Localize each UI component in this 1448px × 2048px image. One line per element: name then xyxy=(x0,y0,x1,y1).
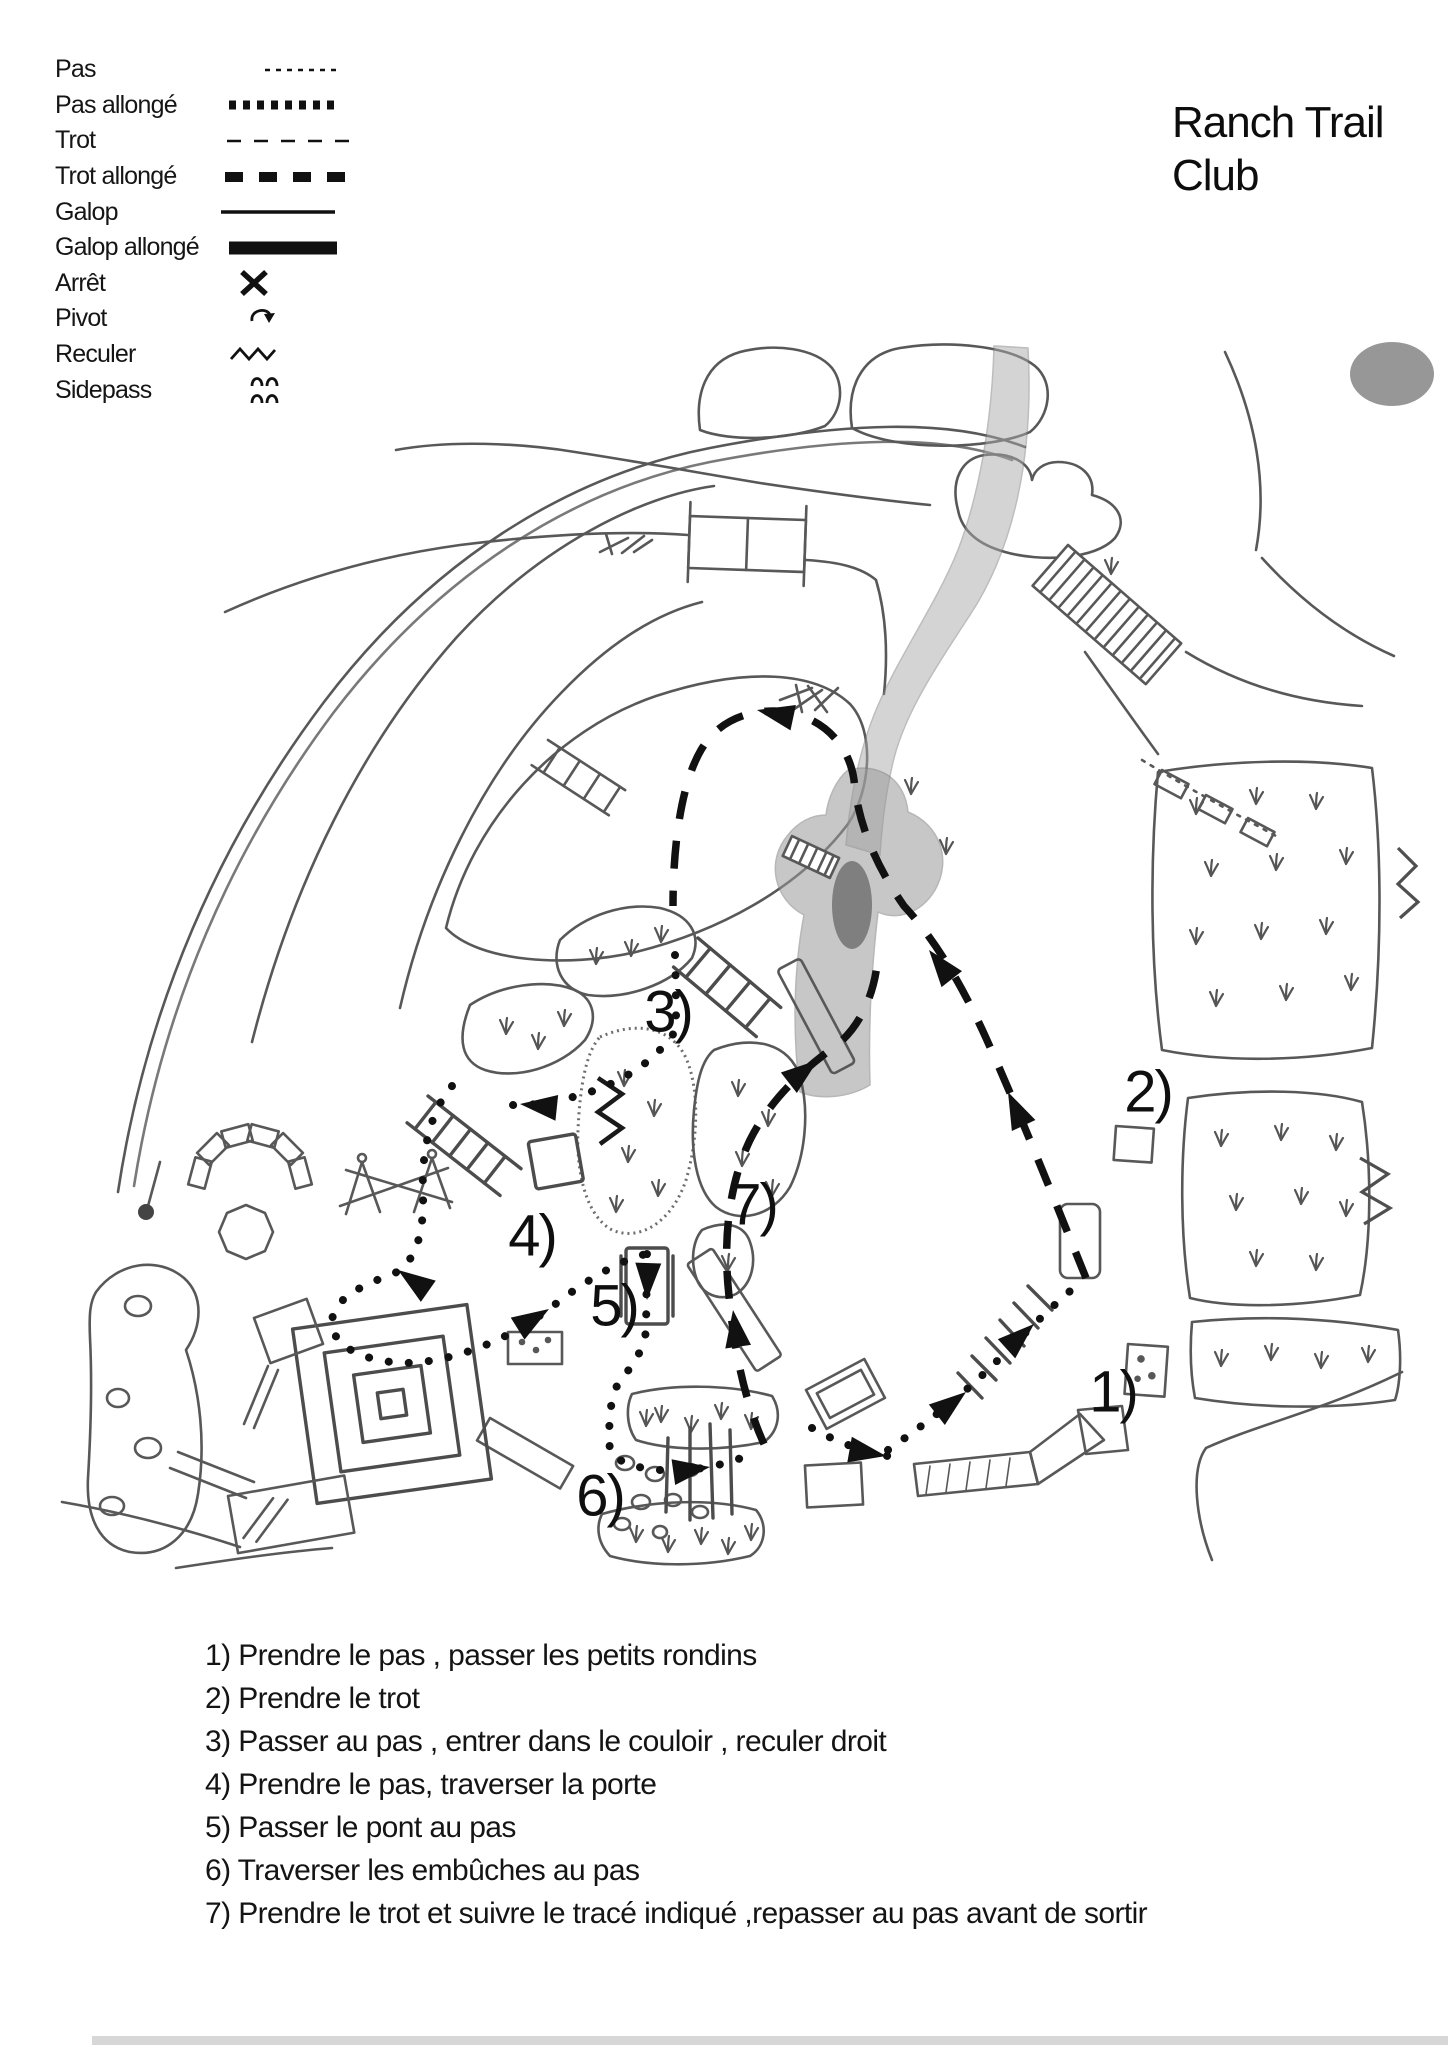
galop-solid-line-icon xyxy=(207,199,347,225)
arena-roads xyxy=(62,345,1402,1568)
obstacles xyxy=(88,502,1168,1564)
legend-label: Arrêt xyxy=(55,269,207,298)
long-plank-lower xyxy=(687,1248,782,1372)
legend-label: Pas xyxy=(55,55,207,84)
legend-label: Pivot xyxy=(55,304,207,333)
legend-item-arret: Arrêt xyxy=(55,266,389,302)
bottom-bench xyxy=(228,1476,354,1554)
legend-label: Galop xyxy=(55,198,207,227)
walkover-poles-top xyxy=(532,740,625,815)
dotted-bench xyxy=(508,1332,562,1364)
legend-item-galop: Galop xyxy=(55,194,389,230)
instruction-line: 6) Traverser les embûches au pas xyxy=(205,1849,1147,1892)
gait-legend: Pas Pas allongé Trot Trot allongé Galop … xyxy=(55,52,389,408)
reculer-zigzag-right-upper xyxy=(1398,848,1418,918)
walk-path-couloir xyxy=(512,955,676,1105)
legend-item-sidepass: Sidepass xyxy=(55,372,389,408)
page-title-line2: Club xyxy=(1172,149,1384,202)
legend-label: Sidepass xyxy=(55,376,207,405)
legend-item-trot-allonge: Trot allongé xyxy=(55,159,389,195)
walk-path-porte-loop xyxy=(332,1086,646,1363)
small-square xyxy=(1114,1126,1154,1163)
brush-scribble xyxy=(600,534,838,712)
pivot-curved-arrow-icon xyxy=(249,305,389,333)
reculer-zigzag-right-lower xyxy=(1360,1158,1390,1224)
reculer-zigzag-couloir xyxy=(598,1078,622,1144)
tree-mass xyxy=(1350,342,1434,406)
course-instructions: 1) Prendre le pas , passer les petits ro… xyxy=(205,1634,1147,1935)
legend-item-galop-allonge: Galop allongé xyxy=(55,230,389,266)
legend-label: Reculer xyxy=(55,340,207,369)
legend-item-trot: Trot xyxy=(55,123,389,159)
pas-dotted-line-icon xyxy=(207,57,347,83)
marker-flag xyxy=(138,1162,160,1220)
trot-dashed-line-icon xyxy=(207,128,352,154)
gate-porte xyxy=(528,1134,584,1190)
legend-item-reculer: Reculer xyxy=(55,337,389,373)
pas-allonge-dotted-bold-line-icon xyxy=(207,92,347,118)
instruction-line: 2) Prendre le trot xyxy=(205,1677,1147,1720)
walk-path-bridge-embuches xyxy=(609,1254,756,1470)
grass-fields xyxy=(905,558,1400,1407)
round-pen xyxy=(188,1124,312,1259)
instruction-line: 1) Prendre le pas , passer les petits ro… xyxy=(205,1634,1147,1677)
legend-label: Trot allongé xyxy=(55,162,207,191)
trot-allonge-dashed-bold-line-icon xyxy=(207,164,352,190)
course-path xyxy=(332,697,1086,1485)
start-box xyxy=(1125,1344,1168,1397)
legend-label: Pas allongé xyxy=(55,91,207,120)
spiral-squares xyxy=(293,1305,492,1504)
fence-posts xyxy=(1154,770,1274,846)
galop-allonge-solid-bold-line-icon xyxy=(207,235,347,261)
arret-x-mark-icon xyxy=(239,269,379,297)
legend-label: Trot xyxy=(55,126,207,155)
walkover-poles-mid xyxy=(674,938,781,1037)
page-title: Ranch Trail Club xyxy=(1172,96,1384,202)
legend-item-pas-allonge: Pas allongé xyxy=(55,88,389,124)
instruction-line: 5) Passer le pont au pas xyxy=(205,1806,1147,1849)
sidepass-double-arches-icon xyxy=(249,373,389,407)
mallet-obstacle xyxy=(244,1299,323,1428)
legend-label: Galop allongé xyxy=(55,233,207,262)
direction-arrows xyxy=(391,697,1043,1485)
page-title-line1: Ranch Trail xyxy=(1172,96,1384,149)
top-stall xyxy=(688,502,807,586)
scan-artifact-strip xyxy=(92,2036,1448,2045)
reculer-zigzag-icon xyxy=(229,341,369,369)
instruction-line: 7) Prendre le trot et suivre le tracé in… xyxy=(205,1892,1147,1935)
x-frame-jump xyxy=(340,1150,452,1214)
instruction-line: 3) Passer au pas , entrer dans le couloi… xyxy=(205,1720,1147,1763)
angled-box xyxy=(806,1359,885,1429)
scanned-course-sheet: { "title": { "line1": "Ranch Trail", "li… xyxy=(0,0,1448,2048)
legend-item-pas: Pas xyxy=(55,52,389,88)
legend-item-pivot: Pivot xyxy=(55,301,389,337)
instruction-line: 4) Prendre le pas, traverser la porte xyxy=(205,1763,1147,1806)
small-box xyxy=(805,1463,863,1508)
